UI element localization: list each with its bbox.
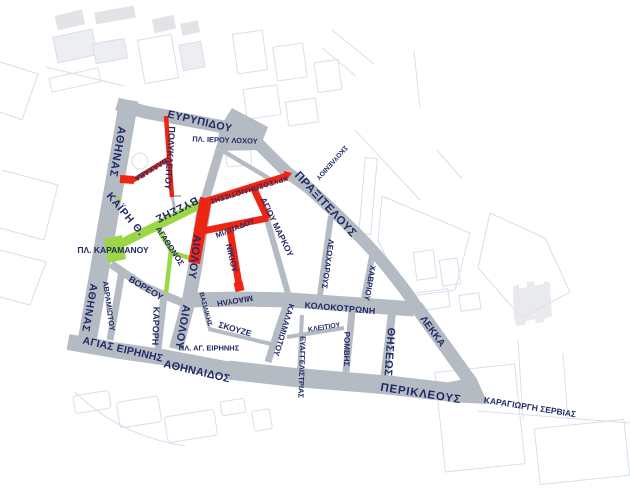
svg-text:ΠΛ. ΑΓ. ΕΙΡΗΝΗΣ: ΠΛ. ΑΓ. ΕΙΡΗΝΗΣ — [179, 344, 240, 353]
svg-text:ΡΟΜΒΗΣ: ΡΟΜΒΗΣ — [342, 332, 352, 367]
svg-text:ΚΑΡΟΡΗ: ΚΑΡΟΡΗ — [150, 307, 161, 346]
svg-text:ΠΛ. ΚΑΡΑΜΑΝΟΥ: ΠΛ. ΚΑΡΑΜΑΝΟΥ — [77, 245, 149, 255]
